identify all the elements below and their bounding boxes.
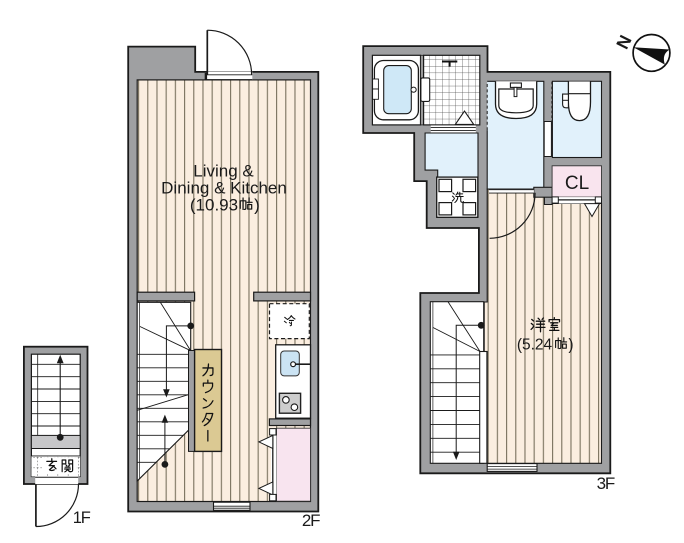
svg-text:1F: 1F xyxy=(73,509,91,527)
svg-text:): ) xyxy=(254,196,260,215)
svg-text:CL: CL xyxy=(565,173,589,194)
svg-text:(10.93: (10.93 xyxy=(190,196,238,215)
svg-text:): ) xyxy=(568,337,573,354)
svg-text:3F: 3F xyxy=(597,474,615,493)
svg-text:(5.24: (5.24 xyxy=(517,337,553,354)
svg-text:2F: 2F xyxy=(302,511,320,530)
